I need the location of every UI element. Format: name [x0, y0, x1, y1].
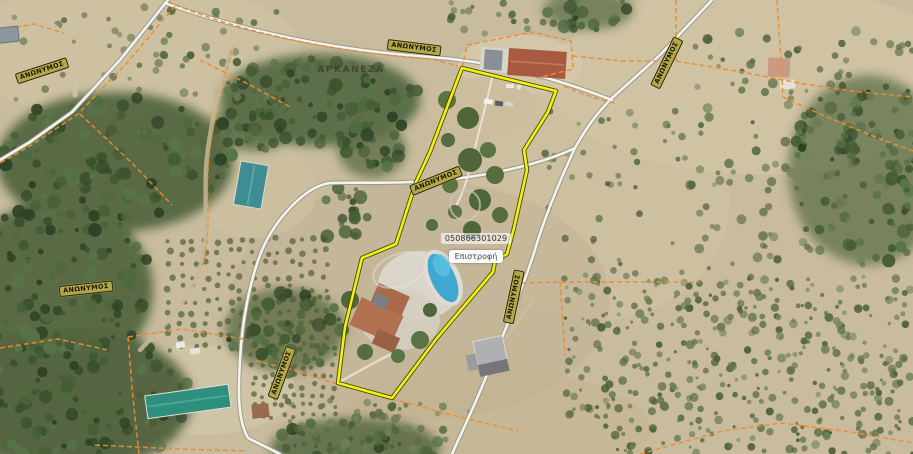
- aerial-map[interactable]: [0, 0, 913, 454]
- parcel-code: 050866301029: [441, 233, 511, 244]
- parcel-tooltip: 050866301029 Επιστροφή: [441, 233, 511, 263]
- brown-shed: [251, 403, 269, 419]
- salmon-building: [767, 57, 790, 77]
- place-label-arkaneza: ΑΡΚΑΝΕΖΑ: [317, 65, 384, 75]
- return-button[interactable]: Επιστροφή: [449, 250, 504, 263]
- partial-label-edge: [0, 26, 20, 45]
- map-canvas[interactable]: ΑΝΩΝΥΜΟΣ ΑΝΩΝΥΜΟΣ ΑΝΩΝΥΜΟΣ ΑΝΩΝΥΜΟΣ ΑΝΩΝ…: [0, 0, 913, 454]
